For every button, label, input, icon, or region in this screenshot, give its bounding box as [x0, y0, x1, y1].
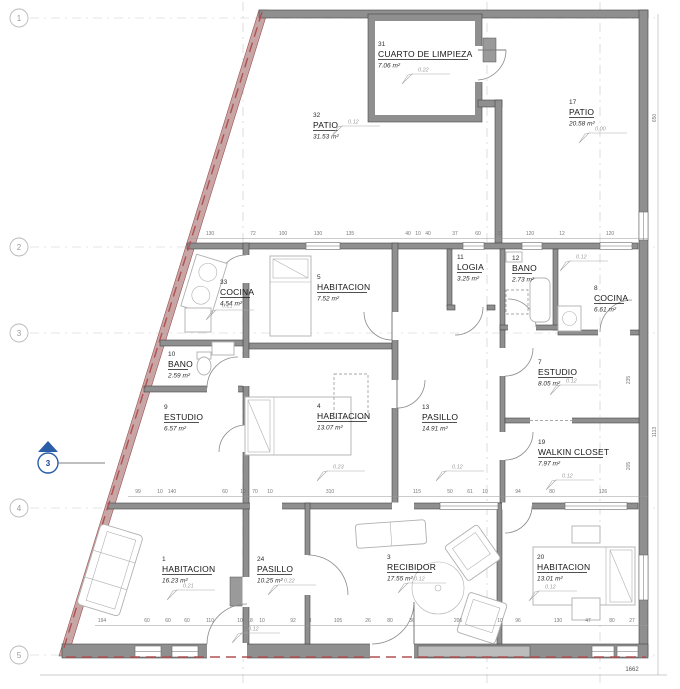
dimension-value: 18	[247, 618, 253, 624]
room-number: 17	[569, 99, 577, 106]
level-value: 0.21	[183, 584, 194, 590]
section-marker-layer: 3	[38, 441, 105, 473]
grid-marker-label: 1	[17, 14, 22, 23]
level-marker: 0.23	[317, 465, 365, 482]
dimension-value: 130	[314, 231, 323, 237]
dimension-value: 40	[425, 231, 431, 237]
room-area: 7.97 m²	[538, 461, 561, 468]
room-area: 14.91 m²	[422, 426, 448, 433]
room-number: 11	[457, 254, 464, 261]
room-label-10: 10BANO2.59 m²	[167, 351, 193, 380]
dimension-value: 120	[606, 231, 615, 237]
room-name: RECIBIDOR	[387, 562, 436, 572]
dimension-value: 10	[237, 618, 243, 624]
dimension-value: 26	[365, 618, 371, 624]
room-label-9: 9ESTUDIO6.57 m²	[164, 404, 203, 433]
dimension-value: 80	[549, 489, 555, 495]
dimension-value: 140	[168, 489, 177, 495]
level-marker: 0.12	[560, 255, 608, 272]
section-marker-3: 3	[38, 441, 105, 473]
room-name: HABITACION	[162, 564, 215, 574]
room-name: HABITACION	[317, 411, 370, 421]
room-number: 13	[422, 404, 430, 411]
dimension-value: 96	[515, 618, 521, 624]
room-name: HABITACION	[317, 282, 370, 292]
dimension-value: 60	[144, 618, 150, 624]
appliance-cocina8	[558, 306, 581, 331]
room-area: 2.59 m²	[167, 373, 191, 380]
room-name: BANO	[512, 263, 537, 273]
room-label-19: 19WALKIN CLOSET7.97 m²	[538, 439, 609, 468]
level-value: 0.22	[418, 68, 429, 74]
room-area: 6.61 m²	[594, 307, 617, 314]
level-value: 0.00	[595, 127, 607, 133]
dimension-value: 135	[346, 231, 355, 237]
dimension-value: 10	[482, 489, 488, 495]
room-area: 13.07 m²	[317, 425, 343, 432]
room-number: 31	[378, 41, 386, 48]
room-area: 17.55 m²	[387, 576, 413, 583]
room-label-32: 32PATIO31.53 m²	[313, 112, 339, 141]
dimension-value: 1113	[652, 427, 658, 438]
room-number: 5	[317, 274, 321, 281]
room-area: 13.01 m²	[537, 576, 563, 583]
room-number: 8	[594, 285, 598, 292]
dimension-row: 1946060601101018109281052680362061096130…	[95, 618, 648, 626]
room-name: PASILLO	[422, 412, 458, 422]
dimension-value: 105	[334, 618, 343, 624]
dimension-value: 120	[526, 231, 535, 237]
sofa-room1	[77, 523, 144, 616]
dimension-value: 37	[452, 231, 458, 237]
armchair-recibidor-1	[444, 524, 501, 581]
dimension-value: 100	[279, 231, 288, 237]
dimension-value: 10	[267, 489, 273, 495]
dimension-row: 9910140601070103101155061109480126	[128, 489, 648, 497]
room-number: 20	[537, 554, 545, 561]
room-name: HABITACION	[537, 562, 590, 572]
dimension-value: 70	[252, 489, 258, 495]
room-area: 10.25 m²	[257, 578, 283, 585]
grid-marker-label: 4	[17, 504, 22, 513]
floor-plan-canvas: 12345	[0, 0, 680, 689]
level-value: 0.12	[248, 627, 259, 633]
room-number: 32	[313, 112, 321, 119]
bed-room5	[270, 256, 311, 336]
dimension-value: 72	[250, 231, 256, 237]
level-value: 0.12	[545, 585, 556, 591]
room-name: PATIO	[569, 107, 594, 117]
closet-room20-bottom	[572, 598, 600, 620]
dimension-value: 94	[515, 489, 521, 495]
level-value: 0.12	[566, 379, 577, 385]
room-name: PASILLO	[257, 564, 293, 574]
room-area: 7.06 m²	[378, 63, 401, 70]
room-label-13: 13PASILLO14.91 m²	[422, 404, 458, 433]
dimension-value: 61	[467, 489, 473, 495]
dimension-value: 60	[475, 231, 481, 237]
room-number: 10	[168, 351, 176, 358]
level-marker: 0.12	[546, 474, 594, 491]
sofa-recibidor	[355, 520, 427, 549]
room-label-17: 17PATIO20.58 m²	[568, 99, 595, 128]
dimension-value: 12	[559, 231, 565, 237]
level-marker: 0.12	[232, 627, 280, 644]
level-value: 0.12	[562, 474, 573, 480]
dimension-value: 194	[98, 618, 107, 624]
room-name: ESTUDIO	[538, 367, 577, 377]
room-label-1: 1HABITACION16.23 m²	[162, 556, 215, 585]
dimension-value: 10	[259, 618, 265, 624]
section-marker-label: 3	[46, 459, 51, 468]
dimension-value: 60	[184, 618, 190, 624]
room-number: 24	[257, 556, 265, 563]
dimension-value: 8	[309, 618, 312, 624]
room-name: COCINA	[594, 293, 628, 303]
dimension-value: 310	[326, 489, 335, 495]
dimension-row: 1307210013013540104037603212012120	[190, 231, 648, 239]
room-area: 7.52 m²	[317, 296, 340, 303]
dimension-value: 40	[405, 231, 411, 237]
room-name: PATIO	[313, 120, 338, 130]
level-marker: 0.00	[579, 127, 627, 144]
dimension-value: 32	[497, 231, 503, 237]
room-label-5: 5HABITACION7.52 m²	[317, 274, 370, 303]
room-area: 8.05 m²	[538, 381, 561, 388]
dimension-value: 235	[626, 376, 632, 385]
room-name: BANO	[168, 359, 193, 369]
dimension-value: 110	[206, 618, 214, 624]
room-label-3: 3RECIBIDOR17.55 m²	[387, 554, 436, 583]
room-number: 9	[164, 404, 168, 411]
floor-plan-page: 12345	[0, 0, 680, 689]
dimension-value: 130	[554, 618, 563, 624]
room-name: WALKIN CLOSET	[538, 447, 609, 457]
dimension-value: 80	[609, 618, 615, 624]
room-name: ESTUDIO	[164, 412, 203, 422]
room-number: 12	[512, 255, 520, 262]
room-number: 1	[162, 556, 166, 563]
dimension-value: 99	[135, 489, 141, 495]
appliance-cocina33	[185, 308, 211, 332]
dimension-value: 50	[447, 489, 453, 495]
closet-room20-top	[572, 526, 600, 543]
room-name: LOGIA	[457, 262, 484, 272]
room-label-8: 8COCINA6.61 m²	[594, 285, 628, 314]
level-value: 0.12	[452, 465, 463, 471]
room-number: 3	[387, 554, 391, 561]
dimension-value: 60	[165, 618, 171, 624]
level-marker: 0.21	[167, 584, 215, 601]
dimension-value: 10	[240, 489, 246, 495]
dimension-value: 10	[157, 489, 163, 495]
dimension-value: 27	[629, 618, 635, 624]
dimension-value: 36	[409, 618, 415, 624]
level-value: 0.22	[284, 579, 295, 585]
room-name: CUARTO DE LIMPIEZA	[378, 49, 473, 59]
level-value: 0.21	[222, 304, 233, 310]
room-number: 7	[538, 359, 542, 366]
dimension-value: 130	[206, 231, 215, 237]
patio-divider-wall	[495, 100, 502, 243]
dimension-value: 10	[497, 618, 503, 624]
grid-marker-label: 3	[17, 329, 22, 338]
room-area: 3.25 m²	[457, 276, 480, 283]
dimension-value: 80	[387, 618, 393, 624]
level-marker: 0.12	[436, 465, 484, 482]
level-value: 0.12	[414, 577, 425, 583]
dimension-value: 650	[652, 114, 658, 123]
dimension-value: 205	[626, 462, 632, 471]
total-dimension: 1662	[625, 667, 639, 673]
room-number: 33	[220, 279, 228, 286]
room-number: 19	[538, 439, 546, 446]
room-label-12: 12BANO2.73 m²	[511, 255, 537, 284]
room-label-11: 11LOGIA3.25 m²	[457, 254, 484, 283]
dimension-value: 206	[454, 618, 463, 624]
room-area: 2.73 m²	[511, 277, 535, 284]
room-area: 20.58 m²	[568, 121, 595, 128]
level-value: 0.12	[348, 120, 359, 126]
dimension-value: 60	[222, 489, 228, 495]
room-number: 4	[317, 403, 321, 410]
dimension-value: 10	[415, 231, 421, 237]
level-value: 0.12	[576, 255, 587, 261]
grid-marker-label: 5	[17, 651, 22, 660]
dimension-value: 92	[290, 618, 296, 624]
dimension-value: 47	[585, 618, 591, 624]
room-area: 31.53 m²	[313, 134, 339, 141]
level-value: 0.23	[333, 465, 345, 471]
dimension-value: 126	[599, 489, 608, 495]
grid-marker-label: 2	[17, 243, 22, 252]
room-area: 6.57 m²	[164, 426, 187, 433]
dimension-value: 115	[413, 489, 421, 495]
room-name: COCINA	[220, 287, 254, 297]
